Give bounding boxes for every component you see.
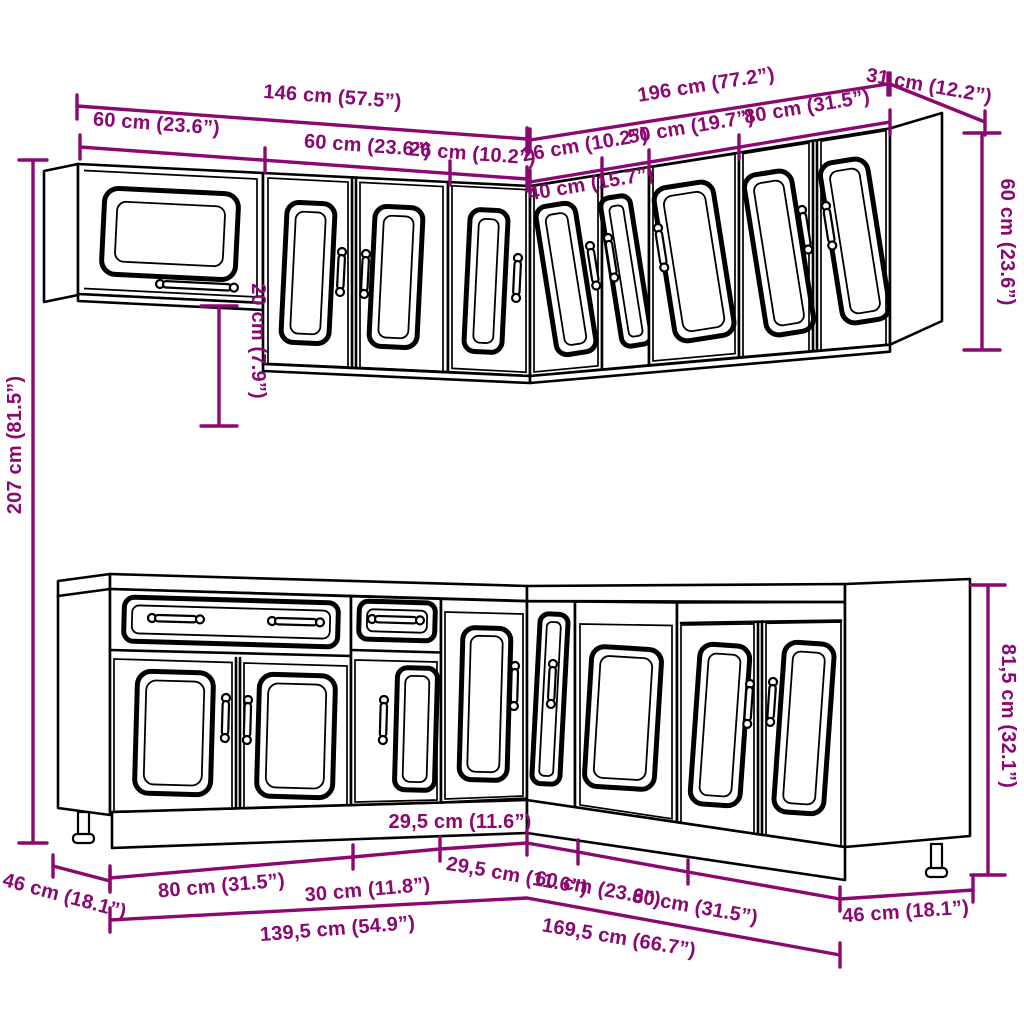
wall-cabinet-narrow-26-right [599,167,652,370]
wall-cabinet-glass-60 [78,164,263,310]
dim-base-height: 81,5 cm (32.1”) [997,644,1019,788]
base-cabinet-corner-left-29-5 [441,599,527,803]
wall-cabinet-narrow-26 [448,182,530,376]
dim-wall-glass-offset: 20 cm (7.9”) [247,283,269,399]
cabinet-technical-drawing: 146 cm (57.5”) 60 cm (23.6”) 60 cm (23.6… [0,0,1024,1024]
base-cabinet-drawer-80 [110,589,351,812]
door-handle-icon [510,662,519,710]
base-cabinet-corner-right-29-5 [527,601,575,807]
wall-cabinet-corner-40 [530,175,602,377]
base-right-side-panel [845,579,970,847]
base-cabinet-single-30 [351,596,441,805]
wall-right-side-panel [890,113,942,345]
dim-wall-height: 60 cm (23.6”) [996,178,1018,305]
kitchen-cabinet-dimension-diagram: 146 cm (57.5”) 60 cm (23.6”) 60 cm (23.6… [0,0,1024,1024]
wall-cabinet-double-60 [263,173,448,372]
base-left-side-panel [58,574,110,815]
drawer-handle-icon [368,615,424,625]
countertop-right [527,584,845,602]
wall-cabinet-double-80 [739,128,891,357]
door-handle-icon [379,696,388,744]
door-handle-icon [243,696,252,744]
base-cabinet-sink-60 [575,602,677,823]
drawer-handle-icon [268,617,324,627]
base-cabinets [58,574,970,880]
wall-left-side-panel [44,164,78,302]
dim-base-left-corner: 29,5 cm (11.6”) [388,811,531,833]
base-cabinet-double-80 [677,602,845,847]
drawer-handle-icon [148,614,204,624]
door-handle-icon [221,694,230,742]
wall-cabinet-single-50 [649,153,739,366]
dim-total-height: 207 cm (81.5”) [4,376,26,514]
